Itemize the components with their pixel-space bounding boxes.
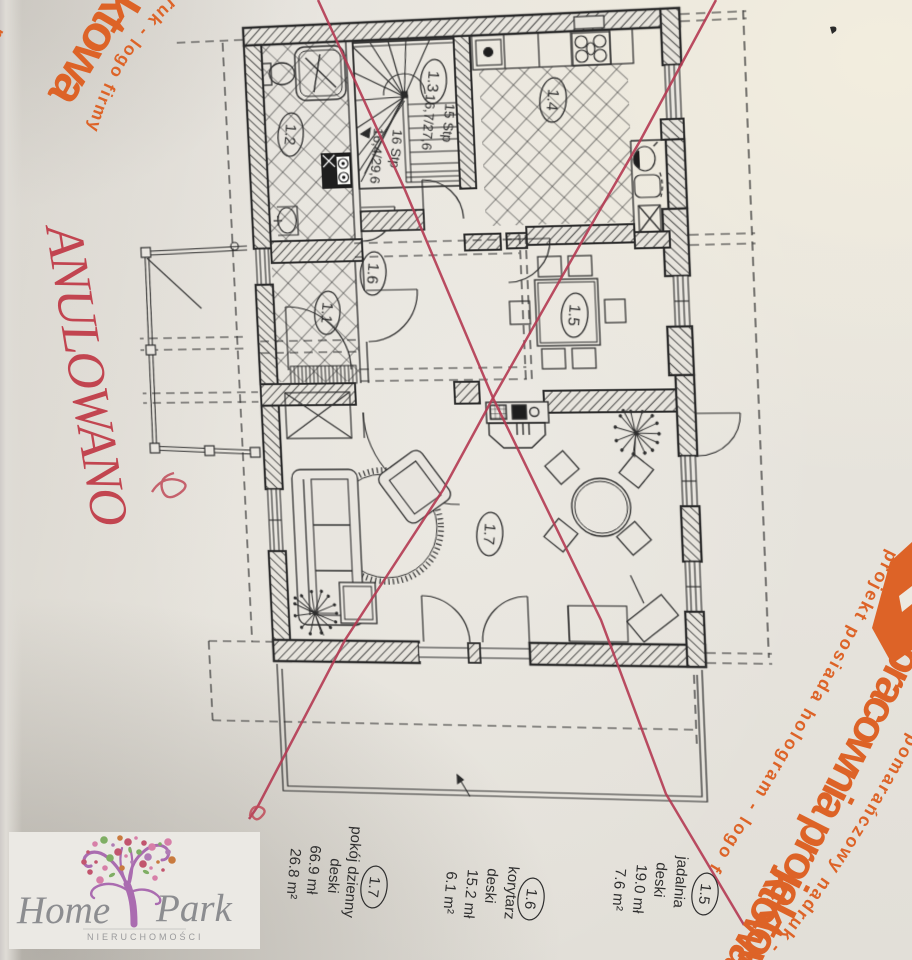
svg-text:deski: deski xyxy=(650,862,670,898)
svg-text:1.6: 1.6 xyxy=(521,888,540,911)
svg-text:Home: Home xyxy=(16,889,110,932)
svg-text:ANULOWANO: ANULOWANO xyxy=(34,218,139,530)
svg-text:1.7: 1.7 xyxy=(364,876,383,899)
svg-text:15.2 mł: 15.2 mł xyxy=(460,869,481,920)
svg-text:66.9 mł: 66.9 mł xyxy=(303,845,324,896)
svg-text:deski: deski xyxy=(324,858,344,894)
svg-text:Park: Park xyxy=(155,887,233,930)
svg-text:deski: deski xyxy=(481,868,501,904)
svg-text:NIERUCHOMOŚCI: NIERUCHOMOŚCI xyxy=(87,931,204,942)
svg-text:1.5: 1.5 xyxy=(695,883,714,906)
svg-text:6.1 m²: 6.1 m² xyxy=(439,871,460,915)
svg-text:my: my xyxy=(0,24,10,59)
svg-text:jadalnia: jadalnia xyxy=(669,855,691,910)
svg-text:26.8 m²: 26.8 m² xyxy=(283,848,304,900)
svg-text:19.0 mł: 19.0 mł xyxy=(629,864,650,915)
svg-text:7.6 m²: 7.6 m² xyxy=(608,868,629,912)
svg-text:korytarz: korytarz xyxy=(500,866,522,921)
